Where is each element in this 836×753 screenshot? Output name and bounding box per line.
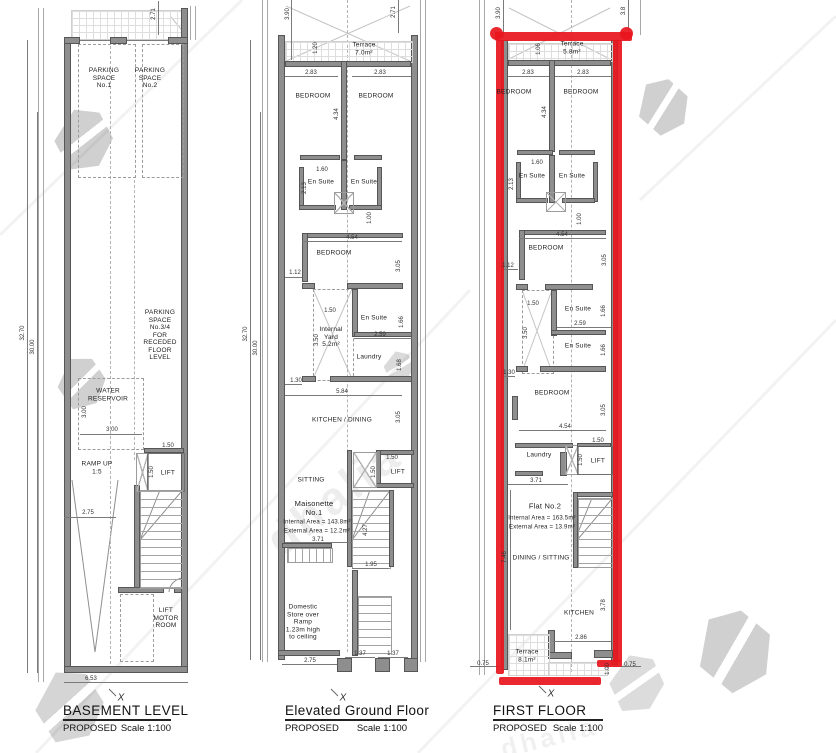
terrace-hatch [285, 41, 413, 63]
dim-label: 0.75 [624, 662, 636, 668]
plan-status: PROPOSED [63, 723, 117, 734]
red-selection-outline [613, 40, 622, 662]
wall [64, 37, 71, 673]
room-label: BEDROOM [317, 249, 352, 257]
room-label: En Suite [351, 178, 377, 186]
dimension-line [291, 0, 292, 60]
dimension-line [27, 40, 28, 673]
room-label: PARKING SPACE No.2 [135, 67, 165, 90]
dimension-line [285, 384, 302, 385]
room-label: LIFT [391, 468, 405, 476]
wall [300, 155, 340, 160]
lift-motor-room-outline [120, 594, 154, 662]
wall [354, 155, 382, 160]
dimension-line [250, 40, 251, 660]
plan-status: PROPOSED [493, 723, 547, 734]
wall [508, 60, 611, 66]
room-label: BEDROOM [296, 92, 331, 100]
wall [512, 396, 518, 420]
plan-scale: Scale 1:100 [553, 723, 603, 734]
room-label: PARKING SPACE No.1 [89, 67, 119, 90]
dashed-centerline [571, 0, 572, 672]
room-label: Terrace 8.1m² [515, 649, 538, 664]
dim-label: 3.05 [396, 411, 402, 423]
dim-label: 2.75 [82, 510, 94, 516]
plan-scale: Scale 1:100 [121, 723, 171, 734]
party-wall-line [420, 0, 421, 662]
dim-label: 2.83 [577, 70, 589, 76]
dim-label: 3.50 [523, 327, 529, 339]
room-label: En Suite [361, 314, 387, 322]
dim-label: 4.27 [363, 524, 369, 536]
dim-label: 1.37 [354, 651, 366, 657]
plan-title-block: FIRST FLOOR PROPOSEDScale 1:100 [493, 703, 603, 734]
wall [516, 366, 528, 372]
wall [352, 289, 358, 337]
section-marker: X [340, 693, 347, 704]
dim-label: 2.71 [391, 6, 397, 18]
dim-label: 32.70 [20, 325, 26, 340]
unit-name: Maisonette No.1 [295, 499, 334, 517]
party-wall-line [425, 0, 426, 662]
dim-label: 30.00 [30, 339, 36, 354]
dim-label: 1.60 [316, 167, 328, 173]
wall [389, 490, 394, 567]
dimension-line [378, 657, 408, 658]
unit-internal-area: Internal Area = 163.5m² [508, 515, 575, 523]
room-label: Internal Yard 5.2m² [319, 326, 342, 349]
dim-label: 3.90 [285, 8, 291, 20]
room-label: En Suite [565, 342, 591, 350]
room-label: BEDROOM [359, 92, 394, 100]
dim-label: 3.05 [602, 254, 608, 266]
dimension-line [519, 430, 606, 431]
dim-label: 1.66 [601, 344, 607, 356]
dim-label: 3.8 [621, 7, 627, 15]
room-label: RAMP UP 1:5 [82, 461, 113, 476]
wall [516, 162, 521, 202]
room-label: Laundry [527, 451, 552, 459]
dimension-line [510, 490, 511, 630]
wall [593, 162, 598, 202]
wall [278, 35, 285, 660]
dim-label: 2.13 [302, 182, 308, 194]
staircase [352, 490, 391, 569]
dim-label: 1.68 [397, 359, 403, 371]
dim-label: 3.50 [314, 334, 320, 346]
dimension-line [80, 434, 142, 435]
plan-title: BASEMENT LEVEL [63, 703, 171, 721]
wall [516, 198, 548, 203]
staircase [578, 498, 613, 568]
wall [540, 366, 606, 372]
dimension-line [37, 112, 38, 673]
room-label: BEDROOM [497, 88, 532, 96]
plan-title-block: BASEMENT LEVEL PROPOSEDScale 1:100 [63, 703, 171, 734]
wall [517, 150, 553, 155]
room-label: LIFT MOTOR ROOM [153, 607, 178, 630]
plan-title: FIRST FLOOR [493, 703, 603, 721]
unit-external-area: External Area = 12.2m² [284, 528, 350, 536]
dimension-line [352, 568, 389, 569]
party-wall-line [38, 8, 39, 682]
wall [404, 658, 418, 672]
dimension-line [64, 517, 116, 518]
wall [551, 330, 606, 335]
dim-label: 4.54 [556, 232, 568, 238]
dim-label: 3.05 [396, 260, 402, 272]
wall [337, 658, 352, 672]
dim-label: 1.20 [313, 42, 319, 54]
wall [376, 483, 414, 488]
dim-label: 3.05 [601, 404, 607, 416]
dimension-line [285, 277, 302, 278]
wall [515, 471, 543, 476]
dimension-line [158, 1, 159, 35]
room-label: Domestic Store over Ramp 1.23m high to c… [286, 603, 320, 641]
dim-label: 7.46 [502, 551, 508, 563]
wall [282, 543, 332, 548]
wall [330, 376, 412, 382]
room-label: Terrace 7.0m² [352, 42, 375, 57]
dim-label: 1.30 [290, 378, 302, 384]
staircase [287, 548, 333, 563]
wall [562, 198, 595, 203]
section-marker: X [118, 693, 125, 704]
room-label: BEDROOM [564, 88, 599, 96]
wall [594, 650, 613, 658]
dim-label: 1.60 [531, 160, 543, 166]
red-selection-outline [499, 677, 601, 685]
dim-label: 1.37 [387, 651, 399, 657]
wall [549, 60, 555, 152]
dim-label: 4.34 [334, 108, 340, 120]
plan-title: Elevated Ground Floor [285, 703, 407, 721]
dim-label: 2.59 [374, 332, 386, 338]
dimension-line [64, 682, 188, 683]
dimension-line [508, 484, 568, 485]
dim-label: 1.00 [605, 663, 611, 675]
room-label: LIFT [161, 469, 175, 477]
dim-label: 4.34 [542, 106, 548, 118]
floor-plan-sheet: dhalia dhalia [0, 0, 836, 753]
parking-bay-outline [78, 44, 136, 178]
dim-label: 1.06 [536, 43, 542, 55]
wall [573, 492, 613, 497]
red-corner-dot [620, 27, 633, 40]
wall [302, 283, 315, 289]
wall [278, 650, 340, 656]
dim-label: 1.50 [527, 301, 539, 307]
dim-label: 2.83 [305, 70, 317, 76]
dimension-line [398, 0, 399, 33]
dim-label: 2.83 [374, 70, 386, 76]
unit-internal-area: Internal Area = 143.8m² [283, 519, 350, 527]
dim-label: 4.54 [559, 424, 571, 430]
plan-status: PROPOSED [285, 723, 339, 734]
shaft [334, 192, 354, 214]
dim-label: 1.00 [577, 213, 583, 225]
dimension-line [628, 0, 629, 30]
room-label: BEDROOM [535, 389, 570, 397]
party-wall-line [484, 0, 485, 675]
room-label: PARKING SPACE No.3/4 FOR RECEDED FLOOR L… [143, 309, 176, 362]
dimension-line [352, 76, 411, 77]
party-wall-line [190, 6, 191, 40]
dim-label: 2.86 [575, 635, 587, 641]
dim-label: 2.71 [151, 8, 157, 20]
dim-label: 0.75 [477, 661, 489, 667]
wall [168, 37, 188, 44]
room-label: KITCHEN / DINING [312, 416, 372, 424]
dim-label: 5.84 [336, 389, 348, 395]
dim-label: 3.00 [82, 406, 88, 418]
dim-label: 1.95 [365, 562, 377, 568]
plan-title-block: Elevated Ground Floor PROPOSEDScale 1:10… [285, 703, 407, 734]
room-label: En Suite [308, 178, 334, 186]
section-marker: X [548, 689, 555, 700]
dim-label: 1.50 [371, 466, 377, 478]
dim-label: 1.12 [502, 263, 514, 269]
dim-label: 2.13 [509, 178, 515, 190]
wall [302, 376, 316, 382]
party-wall-line [262, 0, 263, 662]
dim-label: 2.59 [574, 321, 586, 327]
room-label: Terrace 5.8m² [560, 41, 583, 56]
dim-label: 1.50 [592, 438, 604, 444]
dimension-line [557, 327, 611, 328]
plan-scale: Scale 1:100 [357, 723, 407, 734]
dimension-line [555, 76, 611, 77]
dim-label: 3.78 [601, 599, 607, 611]
unit-external-area: External Area = 13.9m² [509, 524, 575, 532]
party-wall-line [195, 6, 196, 40]
dim-label: 1.66 [399, 316, 405, 328]
room-label: DINING / SITTING [512, 554, 569, 562]
wall [341, 61, 347, 160]
party-wall-line [43, 8, 44, 682]
parking-bay-outline [142, 44, 184, 178]
shaft [546, 192, 566, 212]
dimension-line [553, 641, 611, 642]
dim-label: 3.71 [312, 537, 324, 543]
wall [375, 658, 390, 672]
wall [516, 284, 528, 290]
staircase [358, 596, 392, 654]
dimension-line [345, 657, 375, 658]
dim-label: 1.30 [503, 370, 515, 376]
red-selection-outline [496, 40, 504, 674]
room-label: BEDROOM [529, 244, 564, 252]
dimension-line [354, 338, 412, 339]
party-wall-line [479, 0, 480, 675]
room-label: LIFT [591, 457, 605, 465]
dim-label: 1.50 [324, 308, 336, 314]
unit-name: Flat No.2 [529, 502, 561, 511]
dim-label: 2.83 [522, 70, 534, 76]
dim-label: 1.12 [289, 270, 301, 276]
wall [110, 37, 127, 44]
wall [64, 37, 80, 44]
wall [377, 167, 382, 210]
dim-label: 1.50 [578, 454, 584, 466]
dim-label: 2.75 [304, 658, 316, 664]
party-wall-line [267, 0, 268, 662]
wall [64, 666, 188, 673]
dim-label: 1.00 [367, 212, 373, 224]
party-wall-line [640, 0, 641, 35]
room-label: En Suite [565, 305, 591, 313]
dim-label: 3.71 [530, 478, 542, 484]
dimension-line [282, 664, 337, 665]
dim-label: 3.00 [106, 427, 118, 433]
dim-label: 1.50 [149, 466, 155, 478]
dimension-line [285, 76, 338, 77]
dimension-line [519, 238, 606, 239]
dimension-line [285, 395, 402, 396]
dim-label: 3.90 [496, 7, 502, 19]
red-corner-dot [490, 27, 503, 40]
dim-label: 1.66 [601, 305, 607, 317]
wall [548, 652, 572, 659]
staircase [140, 490, 183, 589]
wall [559, 150, 595, 155]
terrace-hatch [71, 10, 183, 40]
dim-label: 1.50 [162, 443, 174, 449]
dim-label: 30.00 [253, 340, 259, 355]
dim-label: 1.50 [386, 455, 398, 461]
dim-label: 6.53 [85, 676, 97, 682]
room-label: Laundry [357, 353, 382, 361]
dimension-line [508, 76, 549, 77]
room-label: SITTING [297, 476, 324, 484]
dim-label: 4.54 [346, 235, 358, 241]
dimension-line [260, 112, 261, 660]
dimension-line [302, 241, 402, 242]
wall [299, 205, 336, 210]
wall [411, 35, 418, 660]
room-label: En Suite [519, 172, 545, 180]
wall [285, 61, 411, 67]
dim-label: 32.70 [243, 326, 249, 341]
room-label: WATER RESERVOIR [88, 388, 128, 403]
room-label: En Suite [559, 172, 585, 180]
room-label: KITCHEN [564, 609, 594, 617]
